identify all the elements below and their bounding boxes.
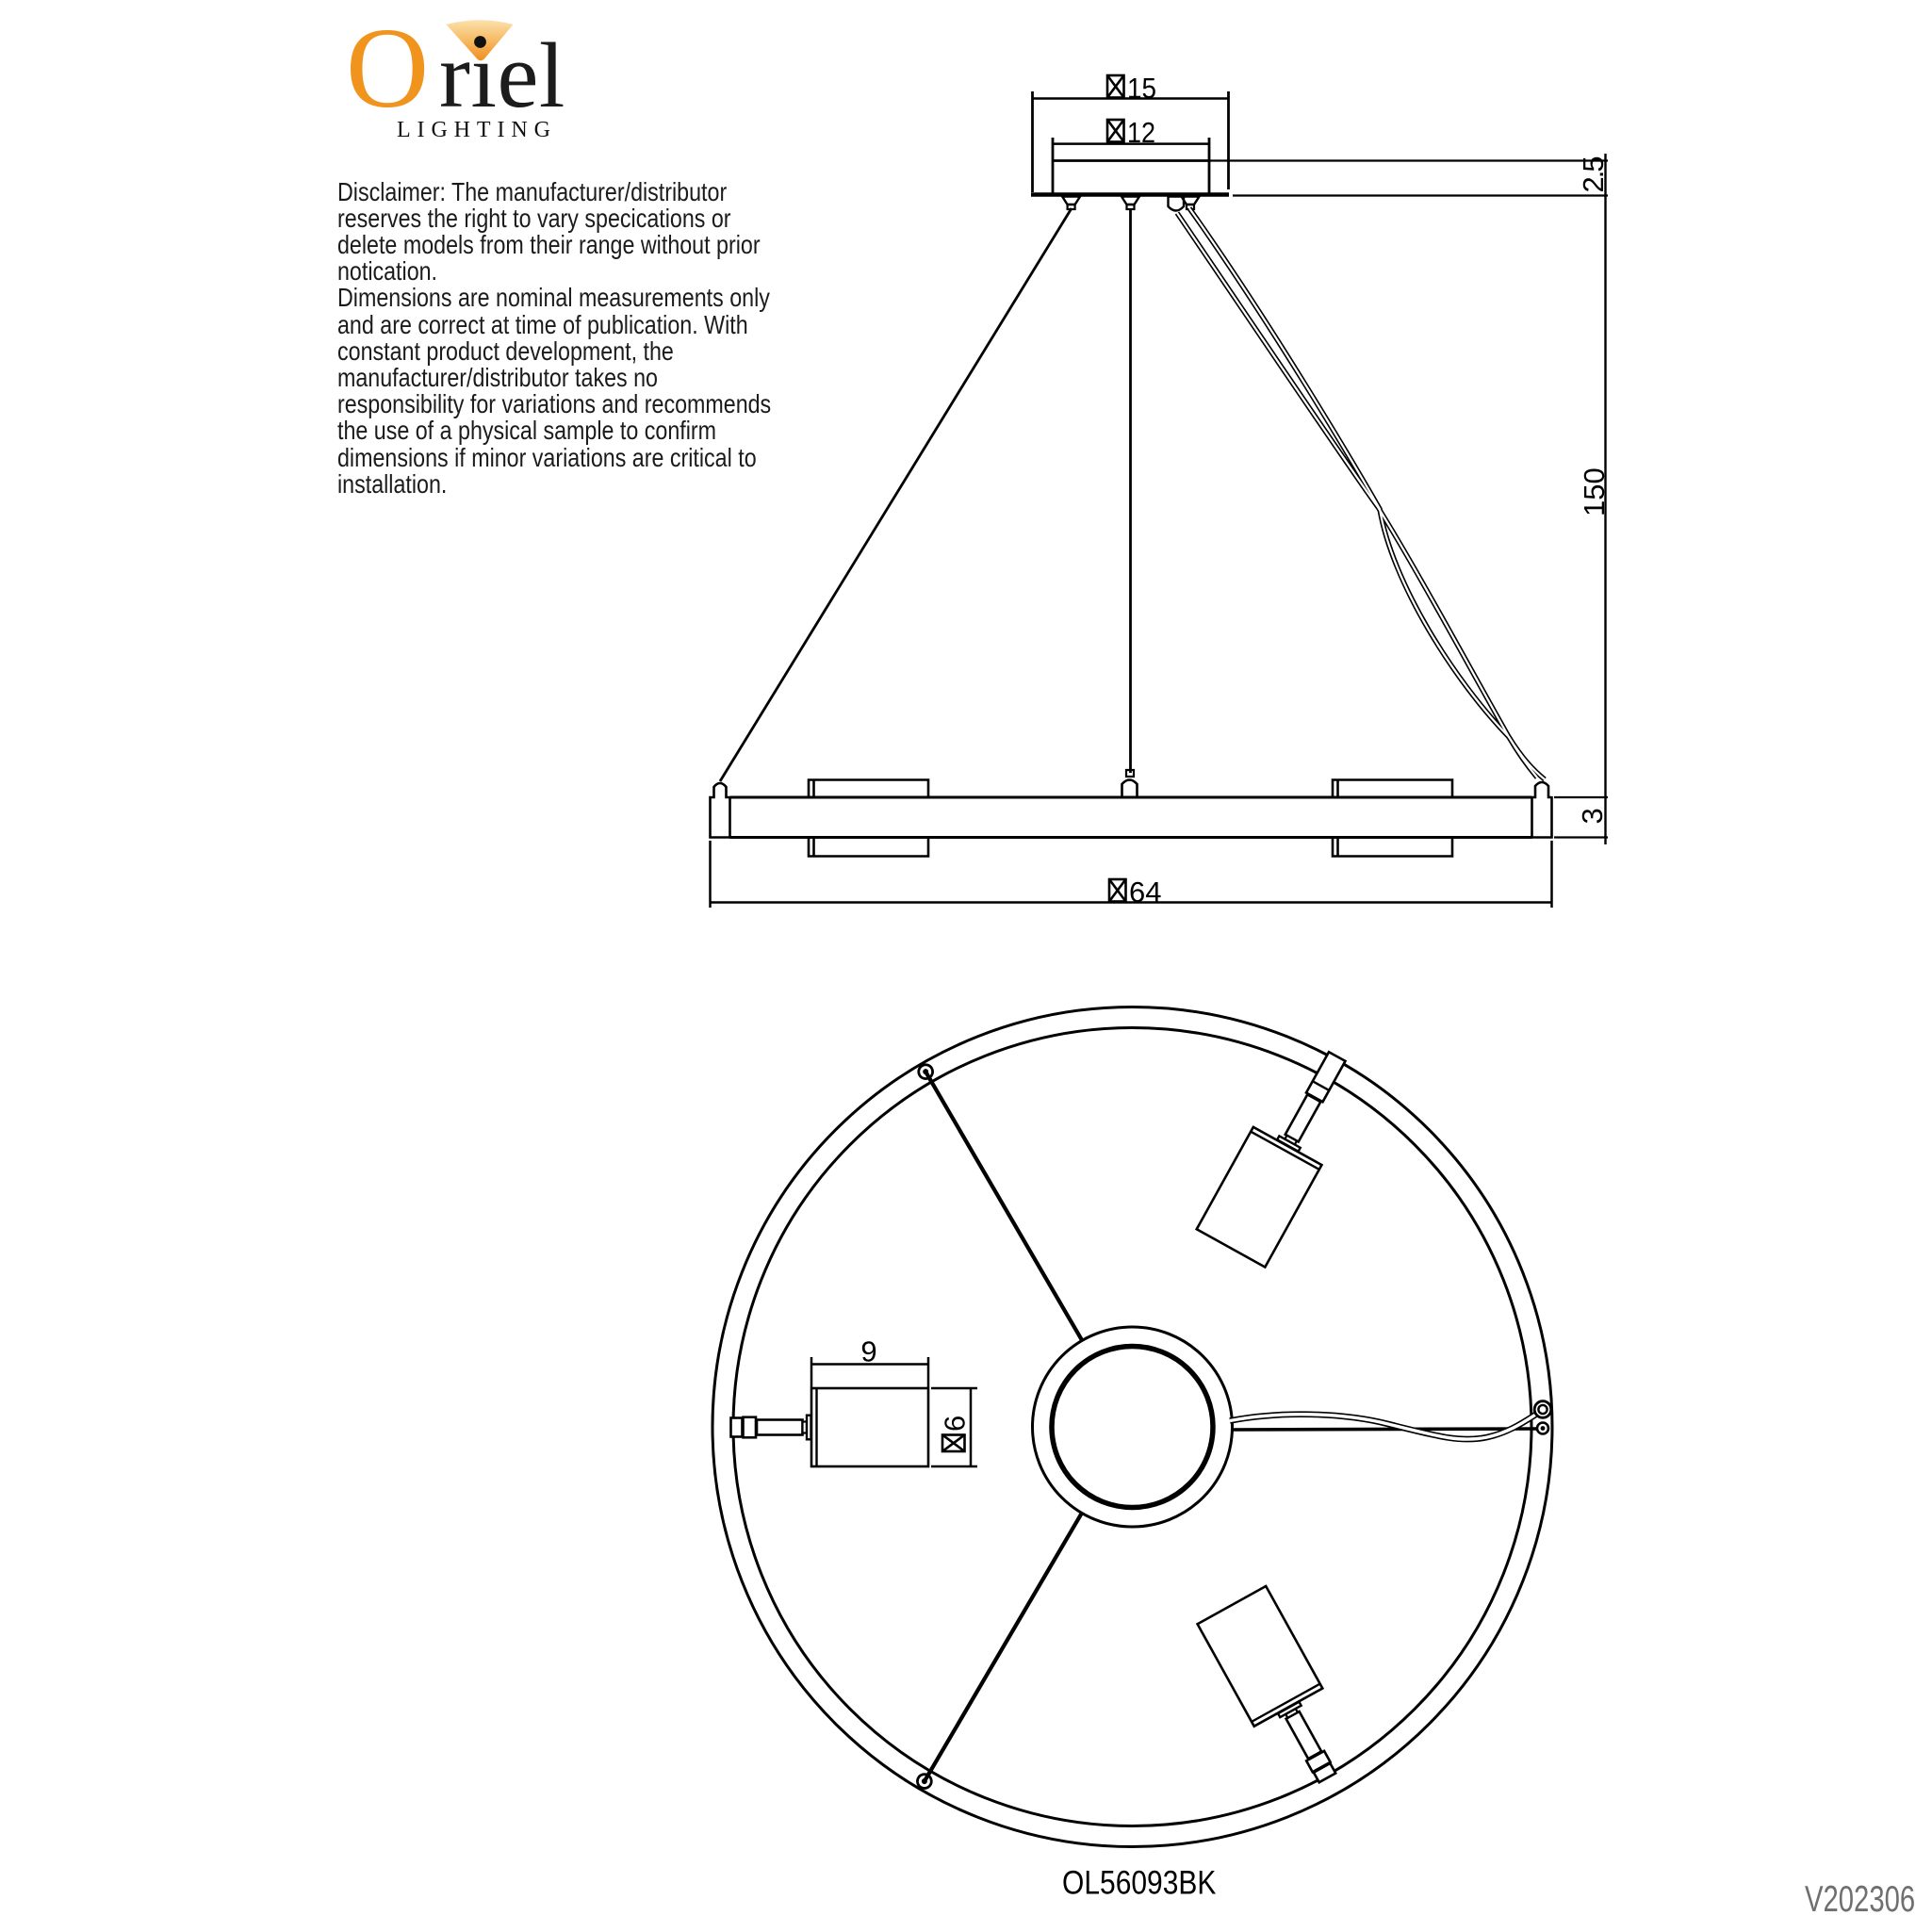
svg-text:12: 12 (1127, 117, 1155, 149)
svg-text:2.5: 2.5 (1577, 157, 1610, 193)
svg-text:9: 9 (860, 1335, 876, 1368)
svg-text:6: 6 (939, 1416, 972, 1432)
svg-text:150: 150 (1578, 467, 1611, 516)
svg-text:3: 3 (1576, 808, 1609, 824)
svg-text:15: 15 (1127, 73, 1156, 106)
svg-text:V202306: V202306 (1805, 1879, 1915, 1920)
svg-text:OL56093BK: OL56093BK (1062, 1863, 1217, 1901)
svg-text:64: 64 (1129, 876, 1161, 909)
